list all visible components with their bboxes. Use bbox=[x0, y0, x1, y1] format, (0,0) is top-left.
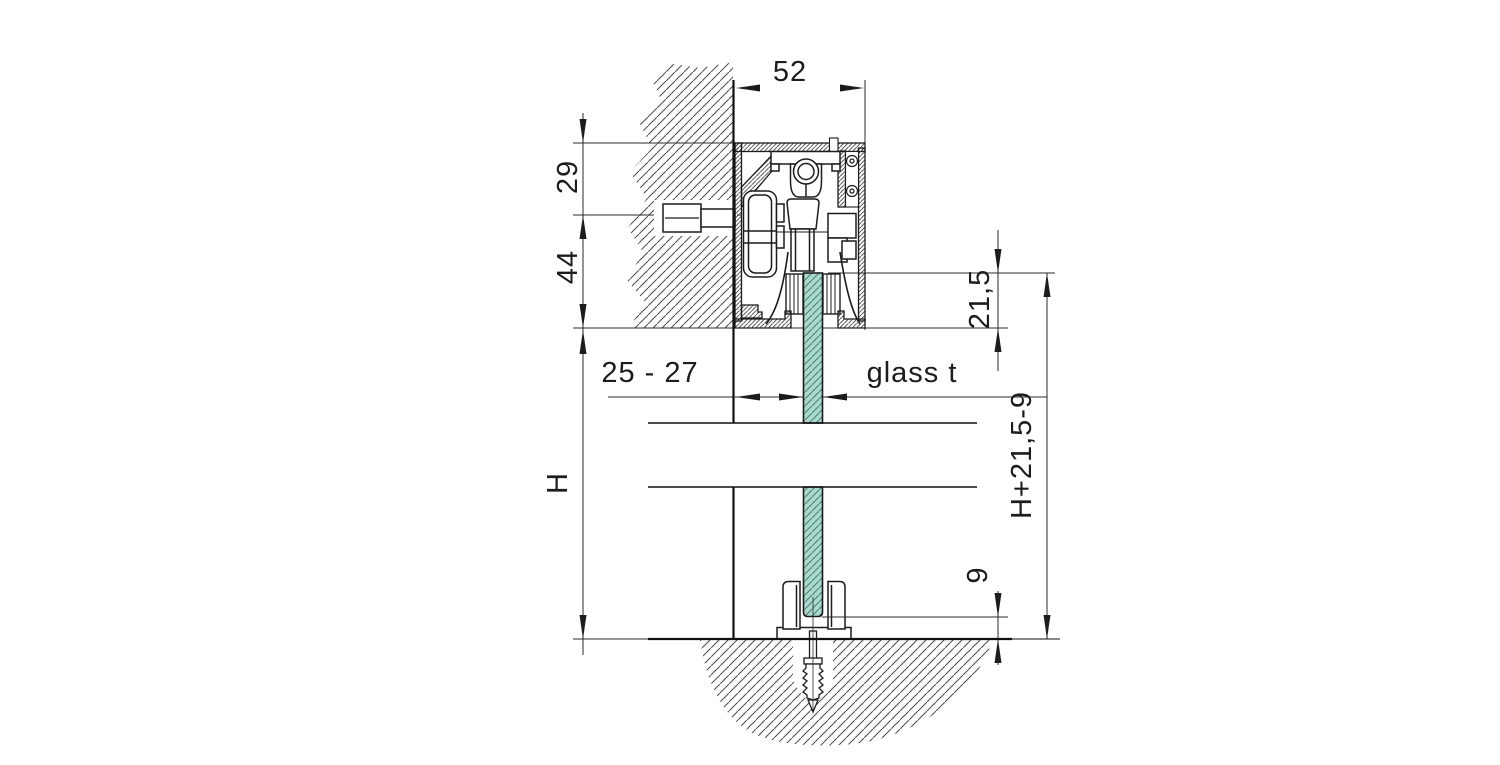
carriage-body bbox=[787, 199, 819, 229]
dim-bottom-gap: 9 bbox=[962, 566, 994, 583]
dim-wall-to-glass: 25 - 27 bbox=[601, 357, 698, 389]
technical-drawing: 52 25 - 27 glass t 29 44 H 21,5 H+21,5-9… bbox=[0, 0, 1500, 765]
bottom-step bbox=[742, 305, 763, 318]
dim-glass-thickness: glass t bbox=[867, 357, 958, 389]
wheel-axle bbox=[777, 226, 785, 248]
glass-panel bbox=[804, 273, 823, 617]
dim-profile-height: 44 bbox=[552, 250, 584, 284]
dim-opening-height: H bbox=[542, 472, 574, 494]
dim-top-offset: 29 bbox=[552, 160, 584, 194]
dim-glass-engagement: 21,5 bbox=[964, 269, 996, 329]
technical-drawing-canvas: 52 25 - 27 glass t 29 44 H 21,5 H+21,5-9… bbox=[0, 0, 1500, 765]
dim-glass-panel-height: H+21,5-9 bbox=[1006, 391, 1038, 519]
wall-fixing-screw bbox=[654, 200, 737, 236]
dim-profile-width: 52 bbox=[773, 56, 807, 88]
floor-section bbox=[700, 639, 993, 746]
adjustment-block bbox=[828, 214, 856, 239]
wall-section bbox=[627, 62, 733, 328]
